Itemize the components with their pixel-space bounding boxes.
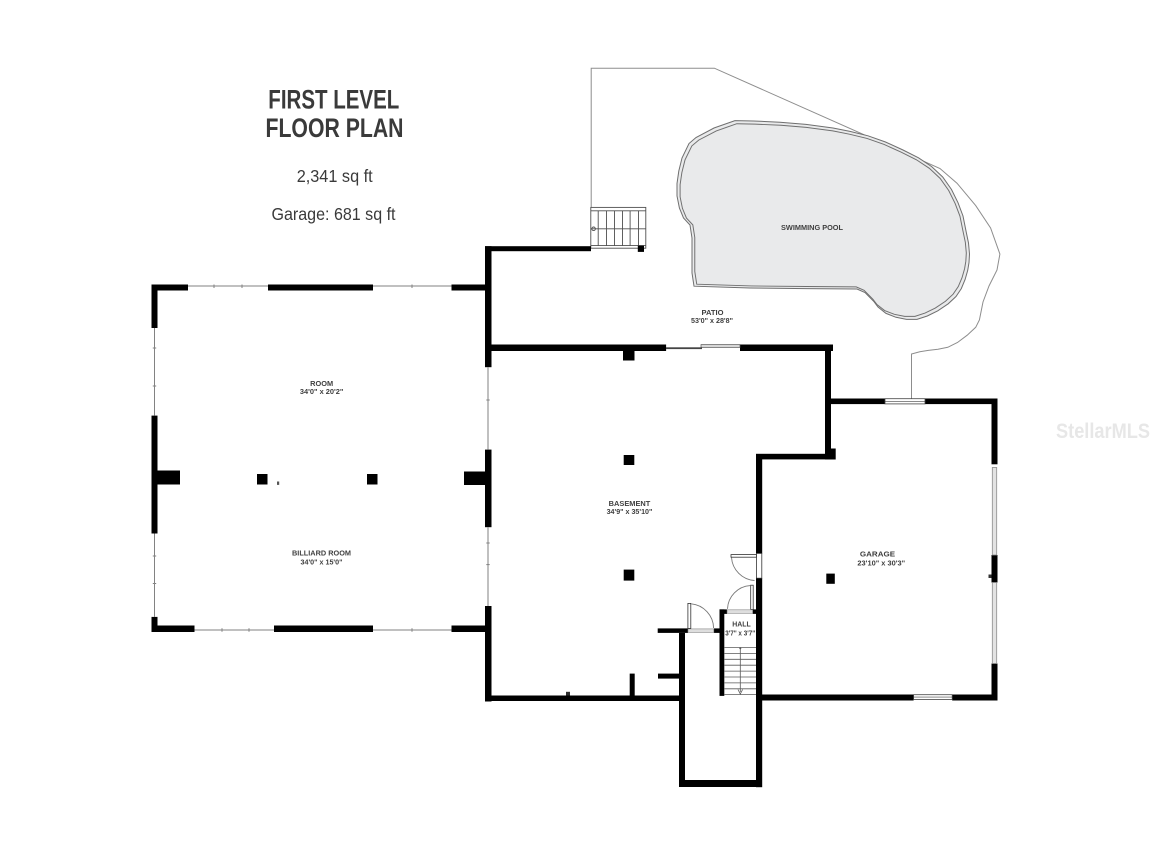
svg-text:FLOOR PLAN: FLOOR PLAN bbox=[266, 113, 404, 143]
svg-text:2,341 sq ft: 2,341 sq ft bbox=[297, 166, 373, 186]
svg-text:Garage: 681 sq ft: Garage: 681 sq ft bbox=[272, 204, 396, 224]
svg-text:BASEMENT: BASEMENT bbox=[609, 501, 651, 508]
svg-text:GARAGE: GARAGE bbox=[860, 552, 896, 559]
svg-text:FIRST LEVEL: FIRST LEVEL bbox=[268, 84, 399, 114]
svg-text:SWIMMING POOL: SWIMMING POOL bbox=[781, 225, 844, 232]
svg-text:ROOM: ROOM bbox=[310, 381, 333, 388]
svg-text:34'0" x 20'2": 34'0" x 20'2" bbox=[300, 389, 344, 396]
svg-text:HALL: HALL bbox=[732, 622, 751, 629]
svg-text:StellarMLS: StellarMLS bbox=[1056, 420, 1150, 443]
svg-text:53'0" x 28'8": 53'0" x 28'8" bbox=[691, 318, 733, 325]
svg-text:23'10" x 30'3": 23'10" x 30'3" bbox=[857, 561, 905, 568]
svg-text:34'0" x 15'0": 34'0" x 15'0" bbox=[301, 560, 343, 567]
svg-text:BILLIARD ROOM: BILLIARD ROOM bbox=[292, 551, 351, 558]
svg-text:3'7" x 3'7": 3'7" x 3'7" bbox=[725, 631, 755, 638]
svg-text:34'9" x 35'10": 34'9" x 35'10" bbox=[607, 509, 653, 516]
svg-text:PATIO: PATIO bbox=[702, 310, 725, 317]
